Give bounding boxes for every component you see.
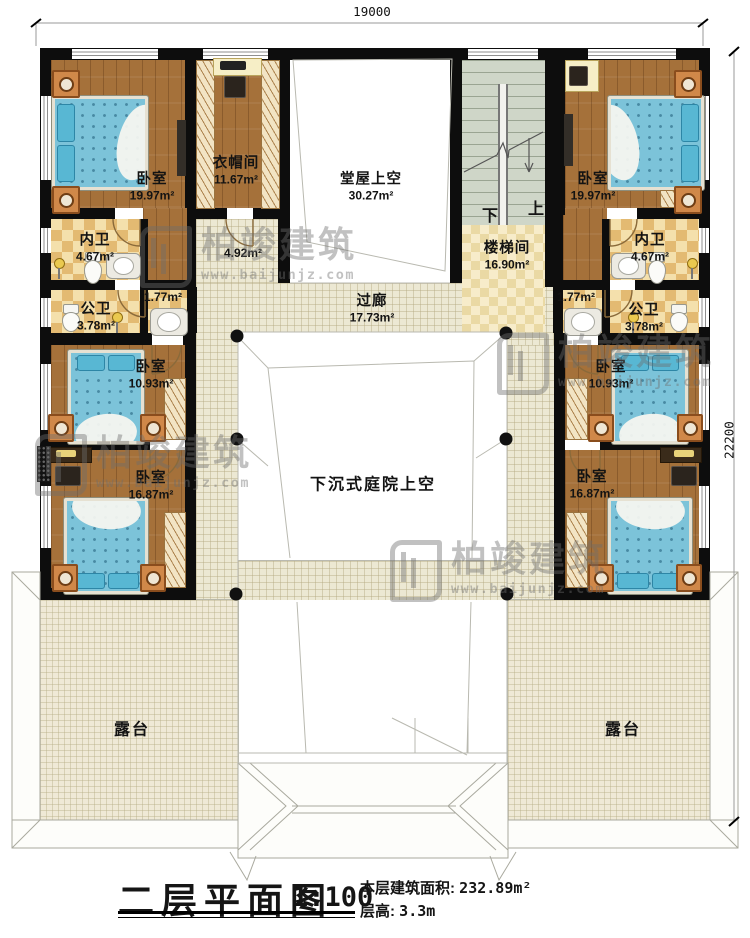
room-label-bedroom-mr: 卧室 10.93m² [589, 359, 634, 390]
stair-up-label: 上 [528, 195, 544, 219]
room-label-bath-public-l: 公卫 3.78m² [77, 301, 115, 332]
room-label-bedroom-ml: 卧室 10.93m² [129, 359, 174, 390]
room-label-hall-void: 堂屋上空 30.27m² [340, 171, 402, 202]
floor-area-info: 本层建筑面积: 232.89m² [360, 877, 531, 898]
title-underline [118, 917, 355, 918]
room-label-bath-inner-l: 内卫 4.67m² [76, 232, 114, 263]
room-label-hall-small: 4.92m² [224, 246, 262, 260]
room-label-bedroom-br: 卧室 16.87m² [570, 469, 615, 500]
stair-down-label: 下 [482, 202, 498, 226]
room-label-terrace-r: 露台 [605, 722, 641, 741]
dimension-right: 22200 [722, 421, 737, 459]
room-label-closet: 衣帽间 11.67m² [213, 155, 260, 186]
room-label-courtyard: 下沉式庭院上空 [310, 477, 436, 496]
dimension-top: 19000 [353, 4, 391, 19]
room-label-bath-inner-r: 内卫 4.67m² [631, 232, 669, 263]
plan-lines-overlay [0, 0, 750, 938]
room-label-terrace-l: 露台 [114, 722, 150, 741]
floor-height-info: 层高: 3.3m [360, 900, 435, 921]
room-label-wash-l: 1.77m² [144, 290, 182, 304]
room-label-bedroom-bl: 卧室 16.87m² [129, 470, 174, 501]
room-label-corridor: 过廊 17.73m² [350, 293, 395, 324]
floor-plan: 卧室 19.97m² 衣帽间 11.67m² 堂屋上空 30.27m² 卧室 1… [0, 0, 750, 938]
room-label-bedroom-tr: 卧室 19.97m² [571, 171, 616, 202]
room-label-wash-r: 1.77m² [557, 290, 595, 304]
room-label-bedroom-tl: 卧室 19.97m² [130, 171, 175, 202]
room-label-stairwell: 楼梯间 16.90m² [484, 240, 531, 271]
room-label-bath-public-r: 公卫 3.78m² [625, 302, 663, 333]
